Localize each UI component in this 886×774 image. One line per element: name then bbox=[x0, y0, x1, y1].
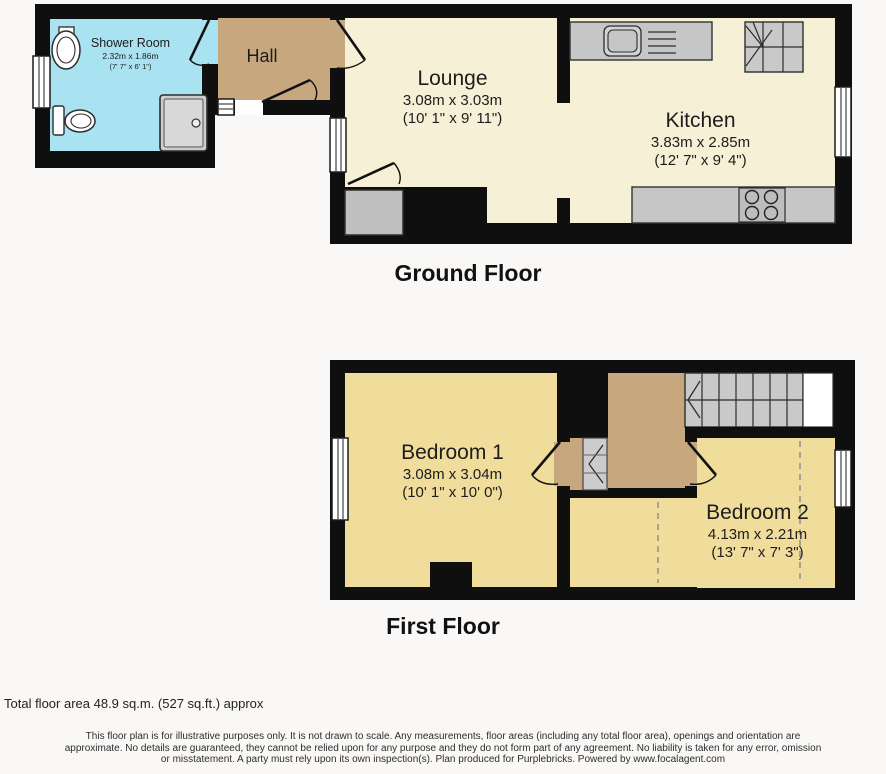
room-fill-landing-upper bbox=[608, 373, 685, 488]
room-fill-hall bbox=[218, 18, 330, 100]
opening-lounge-kitchen bbox=[555, 103, 572, 198]
ground-floor-plan bbox=[0, 0, 886, 255]
disclaimer-line-3: or misstatement. A party must rely upon … bbox=[0, 754, 886, 766]
floorplan-page: Shower Room 2.32m x 1.86m (7' 7" x 6' 1"… bbox=[0, 0, 886, 774]
wall-below-stairs bbox=[685, 427, 845, 438]
window-icon-bedroom-1-left bbox=[332, 438, 348, 520]
disclaimer-text: This floor plan is for illustrative purp… bbox=[0, 731, 886, 766]
sink-icon bbox=[604, 26, 641, 56]
room-fill-bedroom-2 bbox=[697, 438, 835, 588]
window-icon-kitchen-right bbox=[835, 87, 851, 157]
first-floor-plan bbox=[0, 355, 886, 605]
disclaimer-line-2: approximate. No details are guaranteed, … bbox=[0, 743, 886, 755]
stairs-icon-first bbox=[685, 373, 833, 427]
first-floor-label: First Floor bbox=[293, 613, 593, 640]
kitchen-counter-top bbox=[570, 22, 712, 60]
front-door-threshold bbox=[235, 100, 263, 115]
window-icon-hall-front bbox=[218, 99, 234, 115]
window-icon-lounge-left bbox=[330, 118, 346, 172]
window-icon-shower-left bbox=[33, 56, 50, 108]
disclaimer-line-1: This floor plan is for illustrative purp… bbox=[0, 731, 886, 743]
stairs-winder-icon bbox=[583, 438, 607, 490]
door-opening-bedroom-2 bbox=[684, 442, 699, 486]
room-fill-bedroom-1 bbox=[345, 373, 557, 587]
hob-icon bbox=[739, 188, 785, 222]
room-fill-bedroom-2-extension bbox=[570, 498, 697, 587]
door-opening-bedroom-1 bbox=[554, 442, 572, 486]
room-fill-lounge-alcove bbox=[487, 187, 557, 223]
kitchen-counter-bottom bbox=[632, 187, 835, 223]
chimney-breast bbox=[430, 562, 472, 588]
shower-tray-icon bbox=[160, 95, 207, 151]
total-floor-area-text: Total floor area 48.9 sq.m. (527 sq.ft.)… bbox=[4, 696, 263, 711]
ground-floor-label: Ground Floor bbox=[318, 260, 618, 287]
window-icon-bedroom-2-right bbox=[835, 450, 851, 507]
porch-steps bbox=[345, 190, 403, 235]
stairs-icon-ground bbox=[745, 22, 803, 72]
door-opening-shower-hall bbox=[200, 20, 218, 64]
room-fill-lounge bbox=[345, 18, 557, 187]
